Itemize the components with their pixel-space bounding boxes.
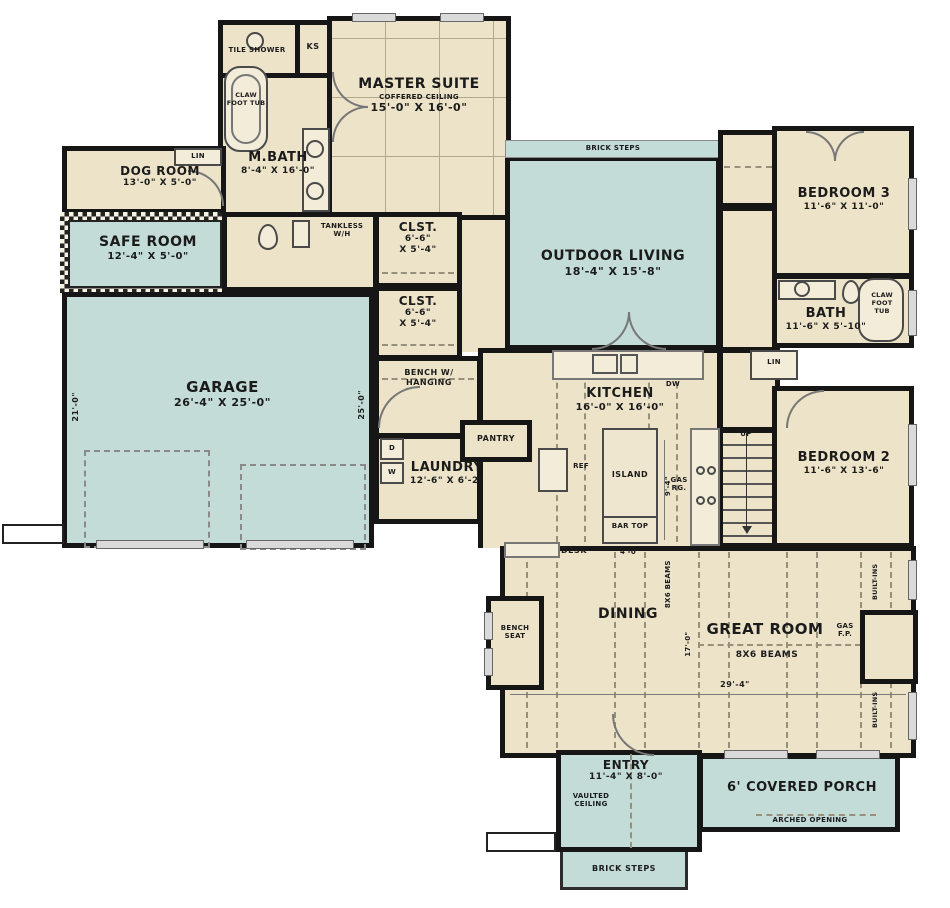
window — [440, 13, 484, 22]
dim-17-0-label: 17'-0" — [684, 624, 692, 664]
room-name: CLST. — [378, 294, 458, 308]
room-dims: 13'-0" X 5'-0" — [95, 178, 225, 189]
bedroom2-label: BEDROOM 2 11'-6" X 13'-6" — [780, 450, 908, 476]
room-dims: 11'-6" X 11'-0" — [780, 202, 908, 213]
garage-stoop — [2, 524, 64, 544]
room-dims: 6'-6" — [378, 308, 458, 319]
bench-hanging-label: BENCH W/ HANGING — [382, 368, 476, 387]
bar-top-label: BAR TOP — [604, 522, 656, 530]
bath-label: BATH 11'-6" X 5'-10" — [776, 306, 876, 332]
garage-dim-left: 21'-0" — [71, 377, 81, 437]
entry-stoop — [486, 832, 556, 852]
refrigerator-icon — [538, 448, 568, 492]
dim-29-4-label: 29'-4" — [700, 680, 770, 690]
gas-range-label: GAS RG. — [666, 476, 692, 493]
burner-icon — [707, 496, 716, 505]
desk-counter — [504, 542, 560, 558]
room-name: DOG ROOM — [95, 164, 225, 178]
room-dims: 26'-4" X 25'-0" — [140, 396, 305, 409]
room-name: BATH — [776, 306, 876, 322]
porch-label: 6' COVERED PORCH — [712, 780, 892, 796]
ref-label: REF — [566, 462, 596, 470]
gas-fp-label: GAS F.P. — [830, 622, 860, 639]
bath-sink-icon — [794, 281, 810, 297]
garage-door — [96, 540, 204, 549]
room-dims: 6'-6" — [378, 234, 458, 245]
window — [816, 750, 880, 759]
room-name: CLST. — [378, 220, 458, 234]
room-dims: 8'-4" X 16'-0" — [222, 166, 334, 177]
room-dims: 12'-6" X 6'-2" — [392, 476, 502, 487]
dryer-label: D — [380, 444, 404, 452]
stair-arrow-line — [746, 432, 747, 528]
bench-seat-bay — [486, 596, 544, 690]
dog-room-label: DOG ROOM 13'-0" X 5'-0" — [95, 164, 225, 189]
kitchen-sink2-icon — [620, 354, 638, 374]
room-dims: X 5'-4" — [378, 319, 458, 330]
ks-label: KS — [298, 42, 328, 52]
hall-filler — [458, 210, 510, 352]
up-label: UP — [734, 430, 758, 438]
ceiling-note: COFFERED CEILING — [352, 93, 486, 101]
beam-line — [556, 352, 586, 542]
tankless-label: TANKLESS W/H — [312, 222, 372, 239]
room-name: MASTER SUITE — [352, 76, 486, 93]
burner-icon — [696, 496, 705, 505]
kitchen-sink-icon — [592, 354, 618, 374]
room-name: ENTRY — [566, 758, 686, 772]
desk-label: DESK — [556, 546, 592, 556]
master-bath-label: M.BATH 8'-4" X 16'-0" — [222, 150, 334, 176]
room-name: GARAGE — [140, 378, 305, 396]
closet-bedroom3 — [718, 130, 778, 208]
closet2-label: CLST. 6'-6" X 5'-4" — [378, 294, 458, 330]
window — [724, 750, 788, 759]
room-dims: X 5'-4" — [378, 245, 458, 256]
dog-lin-label: LIN — [176, 152, 220, 160]
room-name: BEDROOM 2 — [780, 450, 908, 466]
burner-icon — [707, 466, 716, 475]
great-room-label: GREAT ROOM — [680, 620, 850, 638]
master-tub-label: CLAW FOOT TUB — [226, 92, 266, 108]
window — [352, 13, 396, 22]
window — [908, 424, 917, 486]
room-name: OUTDOOR LIVING — [520, 248, 706, 265]
window — [908, 560, 917, 600]
closet1-label: CLST. 6'-6" X 5'-4" — [378, 220, 458, 256]
closet-rod — [382, 344, 454, 346]
builtins-label: BUILT-INS — [872, 556, 880, 608]
room-dims: 11'-6" X 5'-10" — [776, 322, 876, 333]
garage-label: GARAGE 26'-4" X 25'-0" — [140, 378, 305, 409]
bath-tub-label: CLAW FOOT TUB — [864, 292, 900, 315]
closet-rod — [382, 272, 454, 274]
bar-dim-label: 4'-0" — [604, 548, 656, 556]
closet-rod — [724, 166, 772, 168]
bench-seat-label: BENCH SEAT — [490, 624, 540, 641]
room-dims: 11'-6" X 13'-6" — [780, 466, 908, 477]
room-name: LAUNDRY — [392, 460, 502, 476]
hall-bedroom-wing — [718, 206, 780, 352]
dining-label: DINING — [588, 606, 668, 623]
window — [908, 290, 917, 336]
room-dims: 18'-4" X 15'-8" — [520, 265, 706, 278]
garage-bay2-outline — [240, 464, 366, 550]
garage-door — [246, 540, 354, 549]
kitchen-label: KITCHEN 16'-0" X 16'-0" — [550, 386, 690, 414]
floor-plan: MASTER SUITE COFFERED CEILING 15'-0" X 1… — [0, 0, 950, 908]
range-counter — [690, 428, 720, 546]
master-suite-label: MASTER SUITE COFFERED CEILING 15'-0" X 1… — [352, 76, 486, 114]
beams-vertical-label: 8X6 BEAMS — [664, 556, 672, 612]
washer-label: W — [380, 468, 404, 476]
master-bathtub-inner — [231, 74, 261, 144]
laundry-label: LAUNDRY 12'-6" X 6'-2" — [392, 460, 502, 486]
pantry-label: PANTRY — [466, 434, 526, 444]
room-name: SAFE ROOM — [78, 234, 218, 251]
entry-label: ENTRY 11'-4" X 8'-0" — [566, 758, 686, 783]
room-dims: 15'-0" X 16'-0" — [352, 101, 486, 114]
arched-opening-label: ARCHED OPENING — [750, 816, 870, 824]
beams-label: 8X6 BEAMS — [712, 650, 822, 661]
brick-steps-bottom-label: BRICK STEPS — [572, 864, 676, 874]
bedroom3-label: BEDROOM 3 11'-6" X 11'-0" — [780, 186, 908, 212]
room-dims: 12'-4" X 5'-0" — [78, 251, 218, 263]
room-name: M.BATH — [222, 150, 334, 166]
dw-label: DW — [658, 380, 688, 388]
island-label: ISLAND — [606, 470, 654, 480]
stair-arrow-head-icon — [742, 526, 752, 534]
outdoor-living-label: OUTDOOR LIVING 18'-4" X 15'-8" — [520, 248, 706, 278]
window — [908, 178, 917, 230]
room-dims: 16'-0" X 16'-0" — [550, 402, 690, 414]
garage-dim-right: 25'-0" — [357, 375, 367, 435]
garage-bay1-outline — [84, 450, 210, 548]
fireplace — [860, 610, 918, 684]
burner-icon — [696, 466, 705, 475]
safe-room-label: SAFE ROOM 12'-4" X 5'-0" — [78, 234, 218, 263]
hall-lin-label: LIN — [752, 358, 796, 366]
dim-line-29-4 — [510, 694, 906, 695]
toilet-icon — [258, 224, 278, 250]
vaulted-ceiling-label: VAULTED CEILING — [568, 792, 614, 809]
room-name: BEDROOM 3 — [780, 186, 908, 202]
room-dims: 11'-4" X 8'-0" — [566, 772, 686, 783]
window — [908, 692, 917, 740]
window — [484, 648, 493, 676]
brick-steps-top-label: BRICK STEPS — [560, 144, 666, 152]
tankless-water-heater-icon — [292, 220, 310, 248]
tile-shower-label: TILE SHOWER — [226, 46, 288, 54]
master-sink2-icon — [306, 182, 324, 200]
builtins-label: BUILT-INS — [872, 684, 880, 736]
